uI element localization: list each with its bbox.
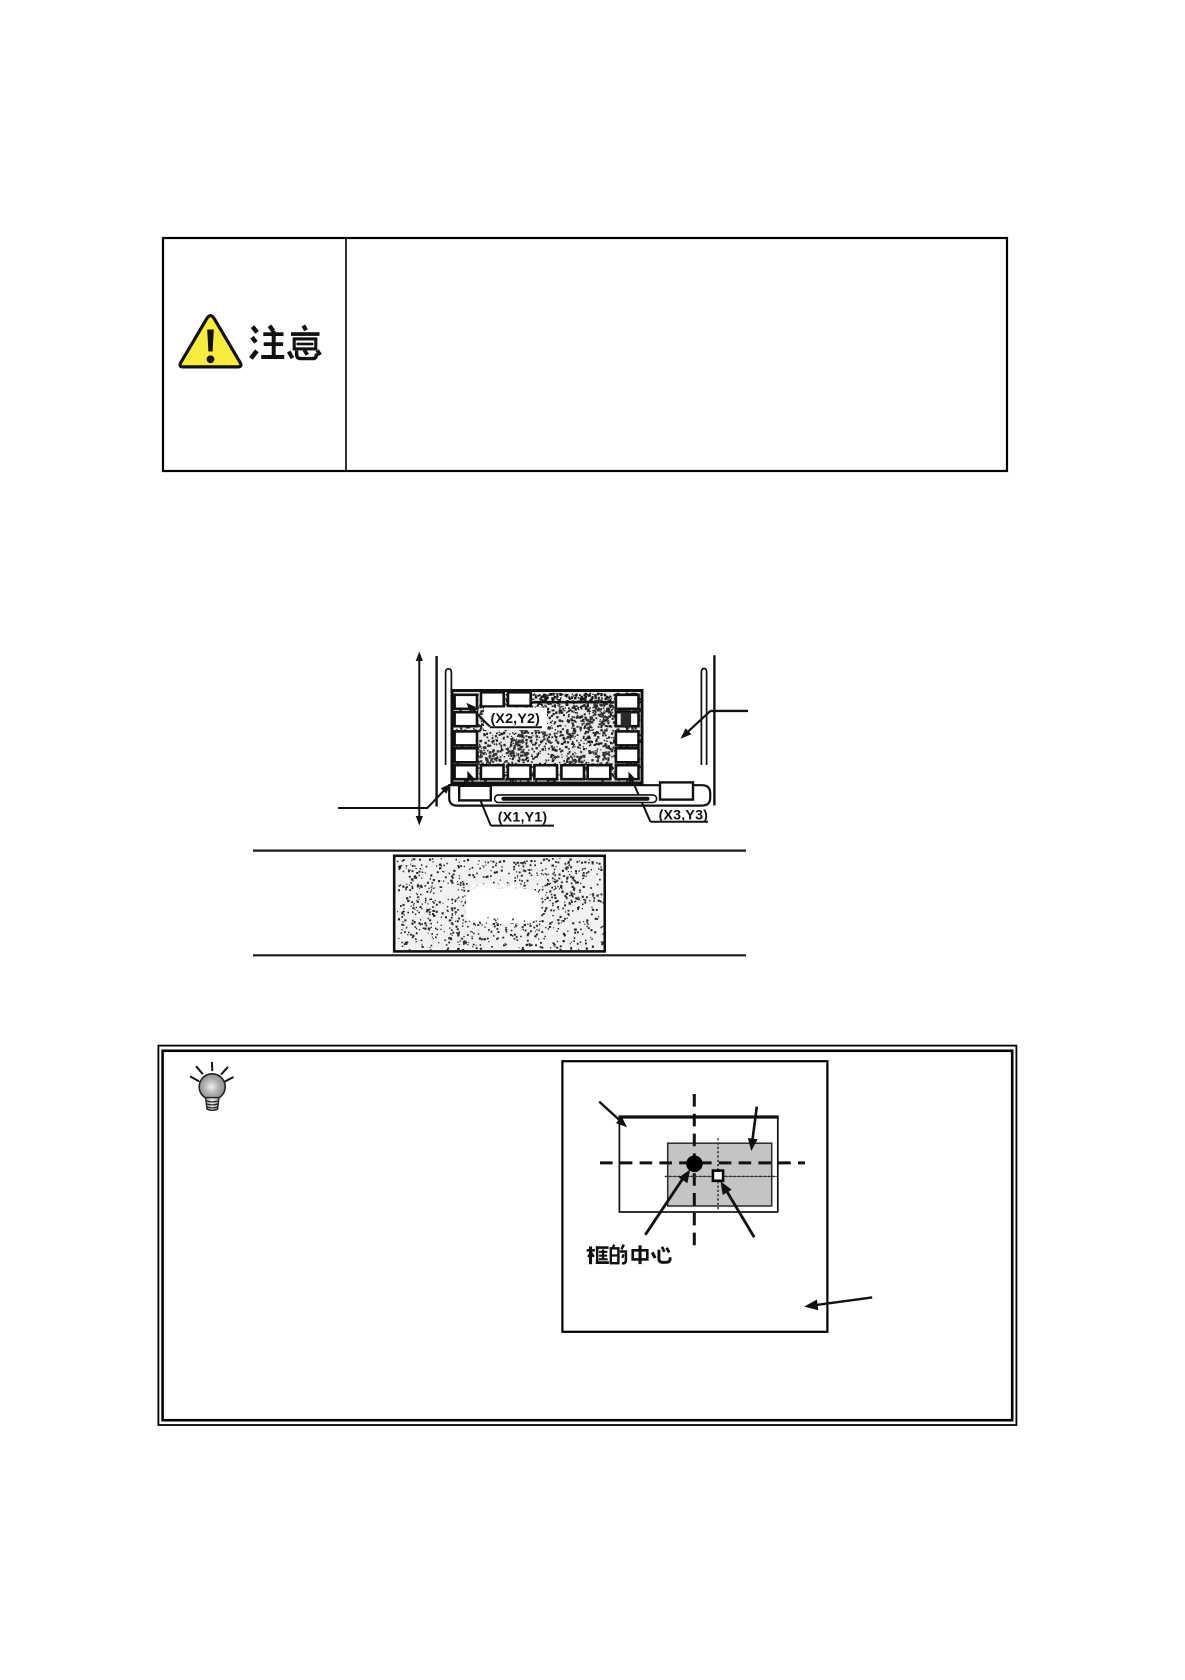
svg-text:(X2,Y2): (X2,Y2) <box>491 711 541 727</box>
svg-text:(X1,Y1): (X1,Y1) <box>498 809 548 825</box>
